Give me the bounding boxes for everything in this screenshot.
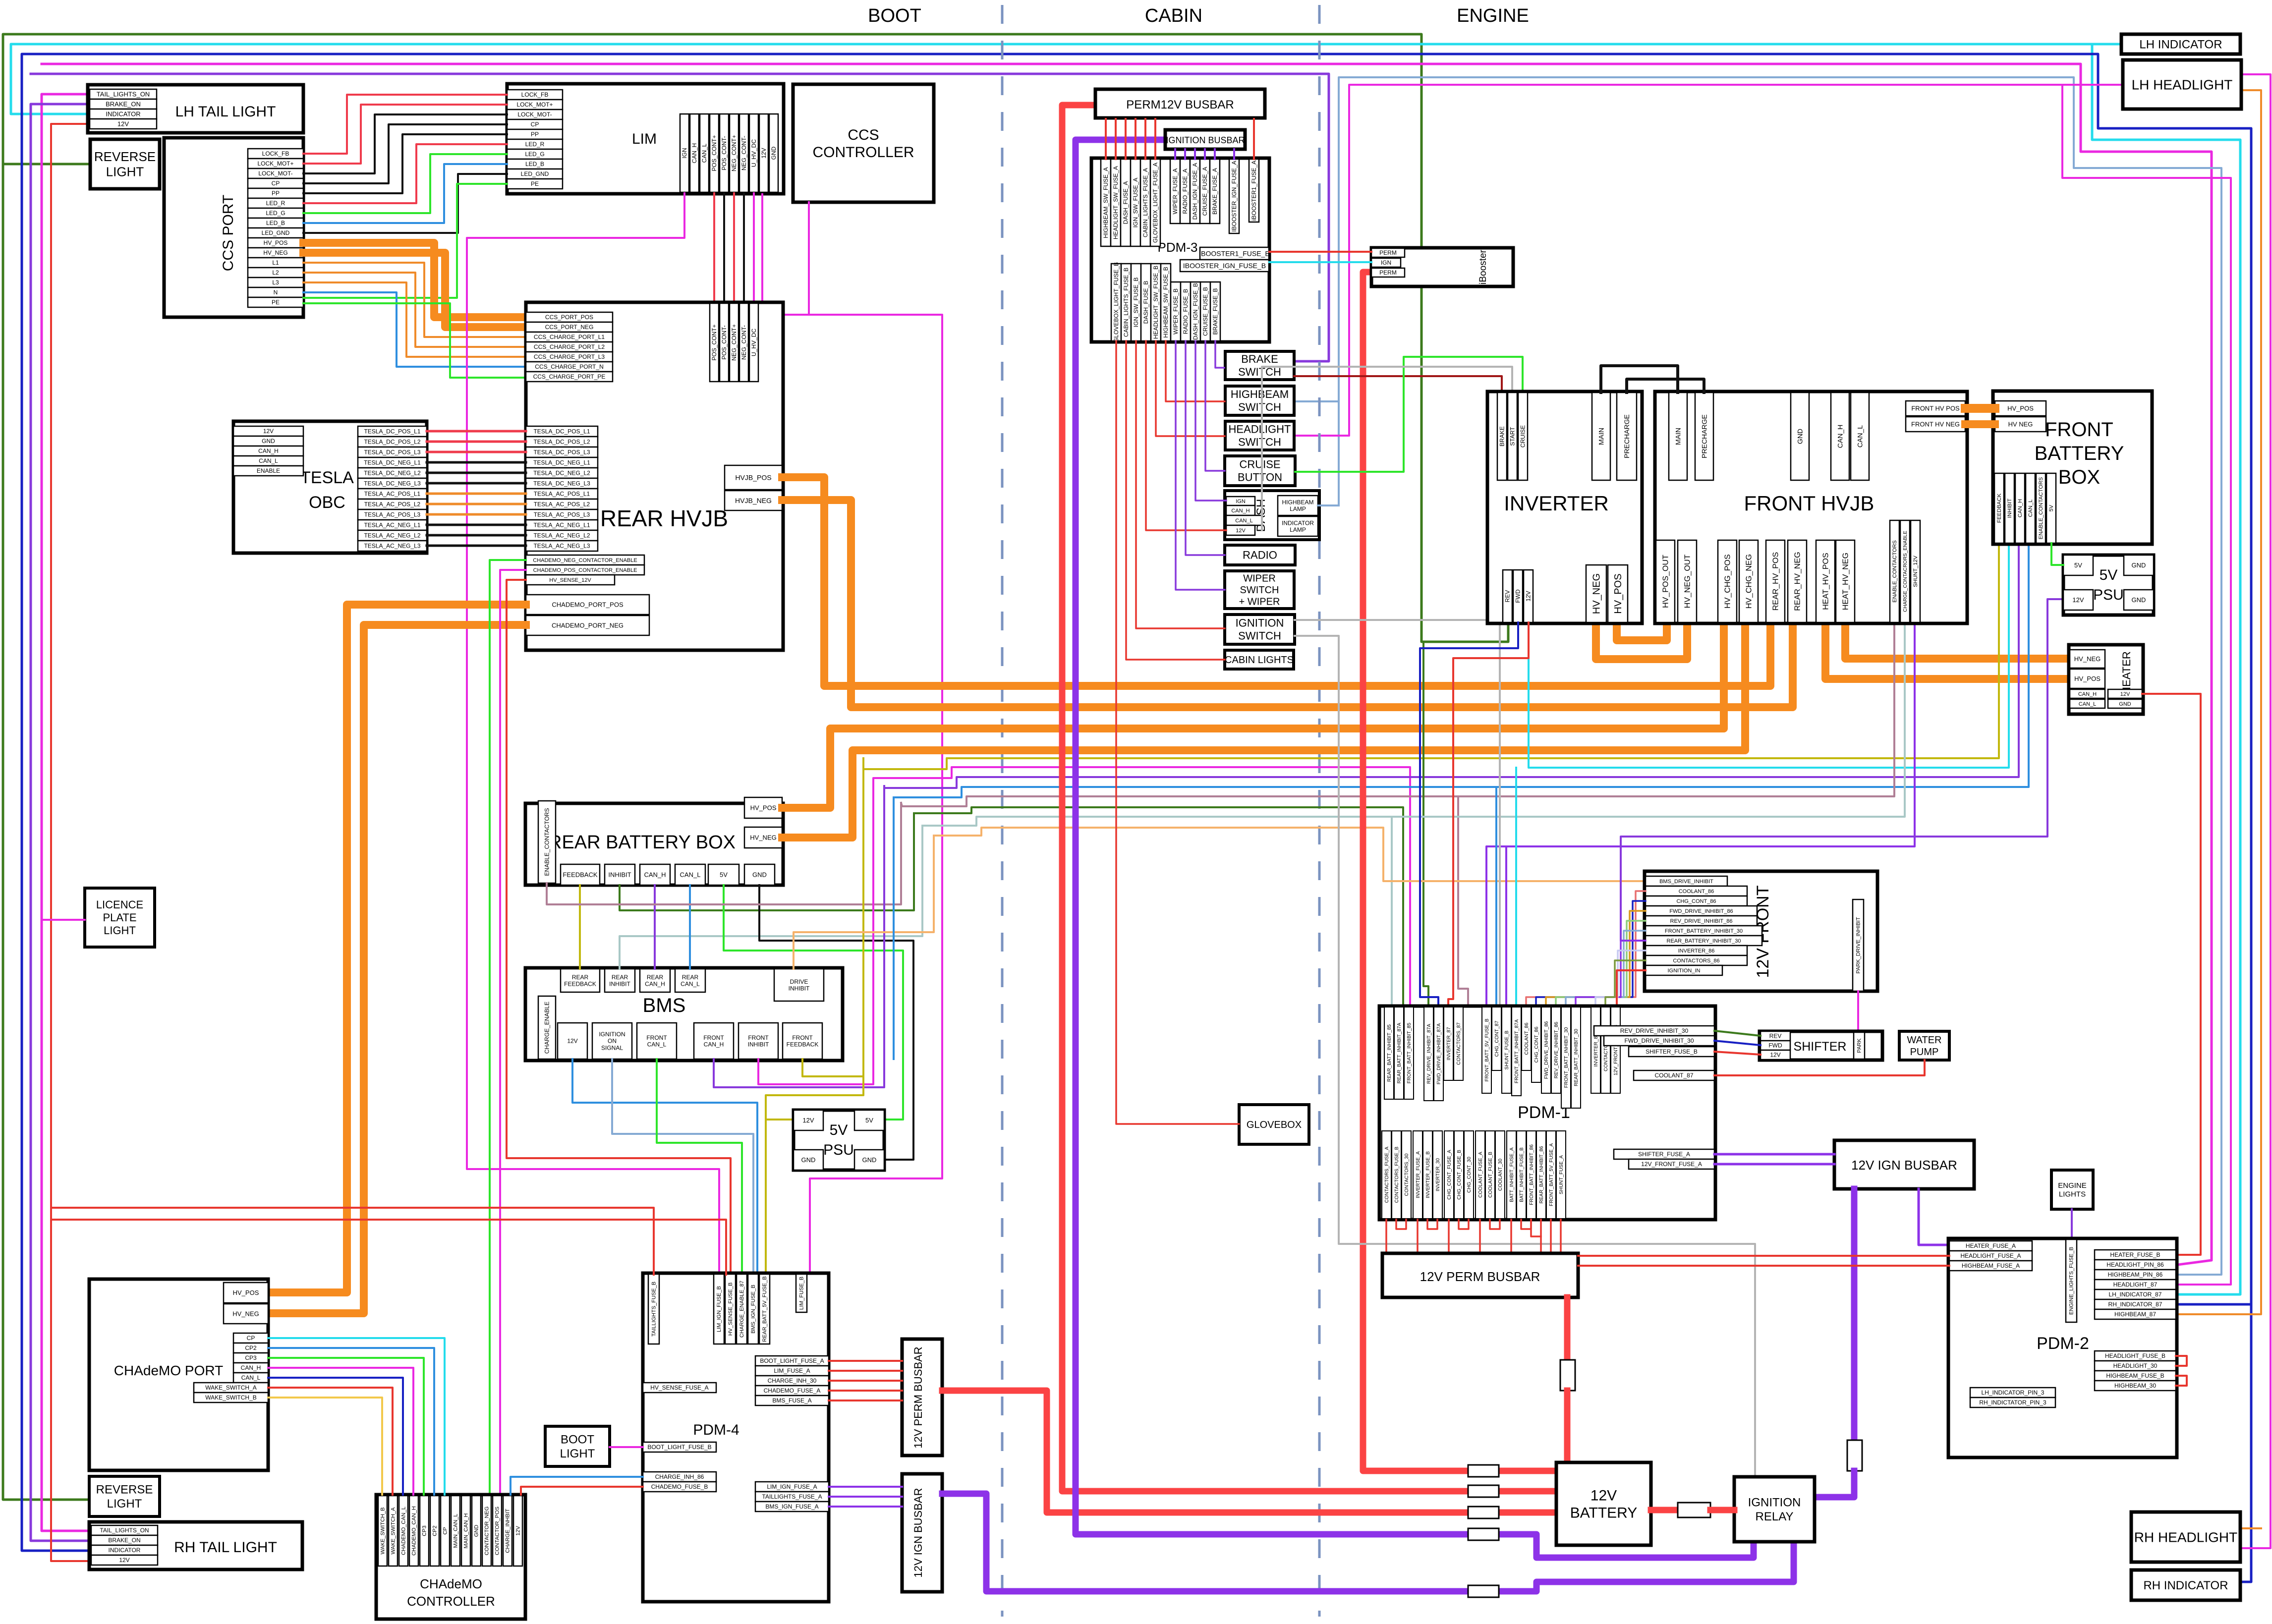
svg-text:CP2: CP2 [245,1344,257,1351]
svg-text:INVERTER_86: INVERTER_86 [1678,948,1715,954]
svg-text:RELAY: RELAY [1756,1510,1794,1523]
svg-text:HEADLIGHT: HEADLIGHT [1229,423,1291,436]
svg-text:CAN_H: CAN_H [644,871,666,879]
svg-text:TESLA_DC_POS_L3: TESLA_DC_POS_L3 [364,449,420,456]
svg-text:BOX: BOX [2058,466,2100,488]
svg-text:IGNITION: IGNITION [1236,617,1284,629]
svg-text:TESLA_AC_NEG_L1: TESLA_AC_NEG_L1 [533,522,590,529]
svg-text:FEEDBACK: FEEDBACK [787,1041,819,1048]
svg-text:GND: GND [752,871,767,879]
svg-text:INVERTER_FUSE_B: INVERTER_FUSE_B [1425,1151,1431,1198]
svg-text:12V: 12V [2072,596,2084,604]
svg-text:TESLA_AC_NEG_L2: TESLA_AC_NEG_L2 [364,532,420,539]
svg-text:BOOT_LIGHT_FUSE_A: BOOT_LIGHT_FUSE_A [760,1357,824,1364]
svg-text:CAN_L: CAN_L [2079,701,2096,707]
svg-text:CHG_CONT_FUSE_A: CHG_CONT_FUSE_A [1447,1150,1452,1200]
svg-text:BATTERY: BATTERY [1570,1505,1638,1521]
svg-text:TESLA_AC_POS_L3: TESLA_AC_POS_L3 [534,511,590,518]
svg-text:LOCK_MOT-: LOCK_MOT- [258,170,292,177]
svg-text:INDICATOR: INDICATOR [1282,519,1314,526]
svg-text:PERM: PERM [1379,249,1397,256]
svg-text:LIGHT: LIGHT [106,164,144,179]
svg-text:SWITCH: SWITCH [1240,585,1279,596]
svg-text:BMS_FUSE_A: BMS_FUSE_A [772,1397,811,1404]
svg-text:BMS: BMS [643,995,686,1016]
svg-text:DASH_IGN_FUSE_A: DASH_IGN_FUSE_A [1192,163,1198,220]
svg-text:BRAKE_ON: BRAKE_ON [108,1537,140,1544]
svg-text:HIGHBEAM_SW_FUSE_B: HIGHBEAM_SW_FUSE_B [1162,267,1169,337]
svg-text:FRONT: FRONT [748,1034,769,1041]
svg-text:GND: GND [2132,561,2146,569]
svg-text:CHG_CONT_86: CHG_CONT_86 [1534,1026,1539,1063]
svg-text:LED_GND: LED_GND [262,229,290,236]
svg-text:12V PERM BUSBAR: 12V PERM BUSBAR [912,1346,924,1448]
svg-text:PE: PE [272,299,280,306]
svg-text:HV_POS: HV_POS [750,804,777,812]
svg-text:GND: GND [2119,701,2131,707]
svg-text:BOOT: BOOT [561,1433,594,1447]
svg-text:CCS_CHARGE_PORT_L2: CCS_CHARGE_PORT_L2 [534,343,605,350]
svg-text:LED_B: LED_B [266,220,285,226]
svg-text:HIGHBEAM: HIGHBEAM [1231,388,1289,400]
svg-text:CAN_L: CAN_L [2028,500,2034,517]
svg-text:5V: 5V [865,1117,873,1124]
svg-text:CHARGE_INH_30: CHARGE_INH_30 [768,1377,817,1384]
svg-text:CHADEMO_NEG_CONTACTOR_ENABLE: CHADEMO_NEG_CONTACTOR_ENABLE [533,558,637,563]
svg-text:LIM_FUSE_B: LIM_FUSE_B [799,1277,805,1310]
svg-text:CONTACTORS_FUSE_A: CONTACTORS_FUSE_A [1384,1146,1390,1203]
svg-text:HV_NEG: HV_NEG [2074,655,2101,663]
svg-text:HEADLIGHT_87: HEADLIGHT_87 [2113,1281,2158,1288]
svg-text:LED_G: LED_G [525,151,544,158]
svg-text:TESLA_DC_NEG_L2: TESLA_DC_NEG_L2 [364,470,421,477]
svg-text:HV_POS_OUT: HV_POS_OUT [1661,555,1670,608]
svg-text:FRONT_BATT_INHIBIT_30: FRONT_BATT_INHIBIT_30 [1564,1027,1569,1088]
svg-text:CCS_CHARGE_PORT_L1: CCS_CHARGE_PORT_L1 [534,334,605,340]
svg-text:COOLANT_86: COOLANT_86 [1679,889,1714,895]
svg-text:PERM: PERM [1379,269,1397,276]
svg-text:TAIL_LIGHTS_ON: TAIL_LIGHTS_ON [100,1527,149,1534]
svg-text:WIPER_FUSE_B: WIPER_FUSE_B [1172,288,1179,335]
svg-text:PSU: PSU [823,1142,854,1158]
svg-text:HVJB_POS: HVJB_POS [735,473,771,481]
svg-text:REVERSE: REVERSE [94,149,156,164]
svg-text:CHAdeMO: CHAdeMO [420,1576,482,1591]
svg-text:SWITCH: SWITCH [1238,436,1281,448]
svg-text:U_HV_DC: U_HV_DC [750,139,757,167]
svg-text:INDICATOR: INDICATOR [109,1547,141,1554]
svg-text:TESLA_AC_NEG_L3: TESLA_AC_NEG_L3 [364,543,420,550]
svg-text:IBOOSTER1_FUSE_B: IBOOSTER1_FUSE_B [1199,249,1269,257]
svg-text:TAILLIGHTS_FUSE_B: TAILLIGHTS_FUSE_B [651,1282,657,1337]
svg-text:INVERTER: INVERTER [1504,492,1609,515]
svg-text:N: N [274,289,278,296]
svg-text:CAN_L: CAN_L [701,143,708,163]
svg-text:PRECHARGE: PRECHARGE [1700,414,1708,458]
svg-text:BATTERY: BATTERY [2035,443,2124,464]
svg-text:5V: 5V [720,871,728,879]
svg-text:CP: CP [531,121,539,128]
svg-text:SWITCH: SWITCH [1238,401,1281,413]
svg-text:HEADLIGHT_SW_FUSE_A: HEADLIGHT_SW_FUSE_A [1112,166,1119,239]
svg-text:GND: GND [862,1156,877,1164]
svg-text:LIGHT: LIGHT [104,924,136,937]
svg-text:12V: 12V [1236,528,1246,534]
svg-text:PDM-2: PDM-2 [2037,1334,2089,1353]
svg-text:CAN_L: CAN_L [680,871,701,879]
svg-text:LOCK_MOT-: LOCK_MOT- [517,111,552,118]
svg-text:WAKE_SWITCH_B: WAKE_SWITCH_B [380,1508,386,1555]
svg-text:IGN_SW_FUSE_B: IGN_SW_FUSE_B [1133,278,1139,328]
svg-text:CONTACTOR_POS: CONTACTOR_POS [495,1507,501,1555]
svg-text:12V: 12V [760,148,767,158]
svg-text:CRUISE: CRUISE [1239,458,1280,471]
svg-text:IGN: IGN [681,148,688,158]
svg-text:LAMP: LAMP [1290,526,1306,533]
svg-text:LIGHT: LIGHT [560,1447,595,1460]
svg-text:WIPER_FUSE_A: WIPER_FUSE_A [1172,168,1179,215]
svg-text:CAN_H: CAN_H [1231,508,1250,514]
svg-text:CRUISE_FUSE_A: CRUISE_FUSE_A [1201,167,1208,216]
svg-text:CCS_CHARGE_PORT_L3: CCS_CHARGE_PORT_L3 [534,353,605,360]
svg-text:CHG_CONT_FUSE_B: CHG_CONT_FUSE_B [1457,1150,1462,1200]
svg-text:PSU: PSU [2093,587,2124,603]
svg-text:REAR_HV_POS: REAR_HV_POS [1771,552,1780,611]
svg-text:CHARGE_INH_86: CHARGE_INH_86 [655,1473,704,1480]
svg-text:IGN: IGN [1381,259,1391,266]
svg-text:REAR: REAR [647,974,664,981]
svg-text:REV: REV [1769,1033,1782,1040]
svg-text:START: START [1509,427,1516,446]
svg-text:INVERTER_87: INVERTER_87 [1446,1027,1452,1061]
svg-text:RH HEADLIGHT: RH HEADLIGHT [2134,1529,2237,1545]
svg-text:WAKE_SWITCH_A: WAKE_SWITCH_A [391,1507,397,1555]
svg-text:FRONT: FRONT [703,1034,724,1041]
svg-text:TESLA_DC_POS_L3: TESLA_DC_POS_L3 [533,449,590,456]
svg-text:INVERTER_FUSE_A: INVERTER_FUSE_A [1416,1151,1421,1198]
svg-text:CHADEMO_CAN_H: CHADEMO_CAN_H [411,1506,417,1556]
svg-text:IGN: IGN [1236,499,1246,504]
svg-text:CAN_H: CAN_H [1836,425,1844,448]
svg-text:HEADLIGHT_30: HEADLIGHT_30 [2113,1362,2158,1369]
svg-text:BRAKE_FUSE_B: BRAKE_FUSE_B [1212,288,1219,335]
svg-text:FEEDBACK: FEEDBACK [564,981,596,988]
svg-text:CABIN_LIGHTS_FUSE_B: CABIN_LIGHTS_FUSE_B [1123,268,1130,337]
svg-text:NEG_CONT+: NEG_CONT+ [731,324,738,361]
svg-text:HV_NEG: HV_NEG [750,834,776,841]
svg-text:CHARGE_INHBIT: CHARGE_INHBIT [505,1509,511,1553]
svg-text:CHADEMO_PORT_NEG: CHADEMO_PORT_NEG [552,622,624,629]
svg-text:TESLA_AC_POS_L1: TESLA_AC_POS_L1 [534,491,590,498]
svg-text:BMS_IGN_FUSE_A: BMS_IGN_FUSE_A [765,1503,818,1510]
svg-text:CAN_H: CAN_H [241,1364,261,1371]
svg-text:COOLANT_FUSE_A: COOLANT_FUSE_A [1478,1152,1483,1198]
svg-text:CONTACTORS_86: CONTACTORS_86 [1673,958,1719,964]
svg-text:TESLA_DC_POS_L2: TESLA_DC_POS_L2 [364,439,420,446]
svg-text:HV NEG: HV NEG [2008,421,2033,428]
svg-text:ENABLE_CONTACTORS: ENABLE_CONTACTORS [2038,477,2044,540]
svg-text:FWD_DRIVE_INHIBIT_87A: FWD_DRIVE_INHIBIT_87A [1436,1023,1442,1084]
svg-text:IGNITION BUSBAR: IGNITION BUSBAR [1166,135,1245,145]
svg-text:CHARGE_ENABLE: CHARGE_ENABLE [544,1002,551,1054]
svg-text:FEEDBACK: FEEDBACK [1996,493,2002,523]
svg-text:PARK: PARK [1857,1038,1863,1053]
svg-text:CAN_L: CAN_L [241,1374,261,1381]
svg-text:ENGINE: ENGINE [1457,5,1529,26]
svg-text:MAIN_CAN_H: MAIN_CAN_H [463,1513,469,1548]
svg-text:CAN_H: CAN_H [691,143,698,164]
svg-text:REAR_BATT_INHIBIT_87A: REAR_BATT_INHIBIT_87A [1397,1022,1402,1083]
svg-text:REAR BATTERY BOX: REAR BATTERY BOX [548,832,736,853]
svg-text:FWD: FWD [1515,589,1522,603]
svg-text:HV_CHG_NEG: HV_CHG_NEG [1745,554,1753,609]
svg-text:CAN_L: CAN_L [1856,425,1864,448]
svg-text:FRONT_BATTERY_INHIBIT_30: FRONT_BATTERY_INHIBIT_30 [1665,928,1743,934]
svg-text:TESLA_DC_POS_L2: TESLA_DC_POS_L2 [533,439,590,446]
svg-text:CABIN: CABIN [1145,5,1202,26]
svg-text:GND: GND [770,146,777,160]
svg-text:LH TAIL LIGHT: LH TAIL LIGHT [175,104,276,120]
svg-text:PUMP: PUMP [1910,1047,1939,1058]
svg-text:INHIBIT: INHIBIT [789,985,810,992]
svg-text:BMS_DRIVE_INHIBIT: BMS_DRIVE_INHIBIT [1659,879,1713,885]
svg-text:TESLA: TESLA [300,468,354,487]
svg-text:CCS PORT: CCS PORT [220,195,236,271]
svg-text:HV_NEG: HV_NEG [1591,573,1602,614]
svg-text:12V: 12V [1590,1487,1617,1504]
svg-text:INHIBIT: INHIBIT [608,871,631,879]
svg-text:TAIL_LIGHTS_ON: TAIL_LIGHTS_ON [97,91,150,98]
svg-text:FRONT_BATT_5V_FUSE_A: FRONT_BATT_5V_FUSE_A [1549,1143,1554,1206]
svg-text:CCS_CHARGE_PORT_N: CCS_CHARGE_PORT_N [535,363,603,370]
svg-text:PERM12V BUSBAR: PERM12V BUSBAR [1126,98,1234,112]
svg-text:CONTACTORS_30: CONTACTORS_30 [1404,1153,1410,1196]
svg-text:CHG_CONT_30: CHG_CONT_30 [1467,1157,1472,1193]
svg-text:HEADLIGHT_FUSE_A: HEADLIGHT_FUSE_A [1960,1252,2021,1259]
svg-text:ENGINE_LIGHTS_FUSE_B: ENGINE_LIGHTS_FUSE_B [2069,1247,2075,1315]
svg-text:TESLA_DC_NEG_L3: TESLA_DC_NEG_L3 [364,480,421,487]
svg-text:CP: CP [247,1335,255,1342]
svg-text:5V: 5V [2100,567,2118,583]
svg-text:CONTACTOR_NEG: CONTACTOR_NEG [484,1507,490,1556]
svg-text:FRONT_BATT_INHIBIT_85: FRONT_BATT_INHIBIT_85 [1407,1022,1412,1083]
svg-text:HEAT_HV_NEG: HEAT_HV_NEG [1841,553,1850,610]
svg-text:BATT_INHIBIT_FUSE_A: BATT_INHIBIT_FUSE_A [1509,1147,1515,1202]
svg-text:CHG_CONT_86: CHG_CONT_86 [1676,898,1716,904]
svg-text:GND: GND [1796,429,1804,444]
svg-text:+ WIPER: + WIPER [1239,597,1280,608]
svg-text:HV_SENSE_FUSE_A: HV_SENSE_FUSE_A [650,1384,708,1391]
svg-text:REV_DRIVE_INHIBIT_30: REV_DRIVE_INHIBIT_30 [1620,1027,1689,1034]
svg-text:HEADLIGHT_PIN_86: HEADLIGHT_PIN_86 [2106,1261,2164,1268]
svg-text:TESLA_DC_NEG_L1: TESLA_DC_NEG_L1 [364,459,421,466]
svg-text:CHADEMO_POS_CONTACTOR_ENABLE: CHADEMO_POS_CONTACTOR_ENABLE [533,567,637,573]
svg-text:CP3: CP3 [245,1354,257,1361]
svg-text:12V: 12V [802,1117,814,1124]
svg-text:CP: CP [443,1527,449,1534]
svg-text:12V IGN BUSBAR: 12V IGN BUSBAR [912,1488,924,1578]
svg-text:HIGHBEAM: HIGHBEAM [1282,499,1313,505]
svg-text:INHIBIT: INHIBIT [2007,499,2013,518]
svg-text:LH INDICATOR: LH INDICATOR [2139,38,2222,51]
svg-text:12V IGN BUSBAR: 12V IGN BUSBAR [1851,1158,1957,1173]
svg-text:IBOOSTER_IGN_FUSE_B: IBOOSTER_IGN_FUSE_B [1183,262,1266,270]
svg-text:HIGHBEAM_PIN_86: HIGHBEAM_PIN_86 [2108,1271,2163,1278]
svg-text:ENGINE: ENGINE [2058,1181,2087,1190]
svg-text:LED_G: LED_G [266,210,285,217]
svg-text:HEADLIGHT_FUSE_B: HEADLIGHT_FUSE_B [2105,1352,2165,1359]
svg-text:LOCK_MOT+: LOCK_MOT+ [516,101,553,108]
svg-text:PRECHARGE: PRECHARGE [1623,414,1631,458]
svg-text:TESLA_DC_POS_L1: TESLA_DC_POS_L1 [364,428,420,435]
svg-text:HIGHBEAM_FUSE_A: HIGHBEAM_FUSE_A [1962,1262,2020,1269]
svg-text:HEAT_HV_POS: HEAT_HV_POS [1821,553,1830,610]
svg-text:ENABLE: ENABLE [257,467,280,474]
svg-text:IGNITION_IN: IGNITION_IN [1667,968,1700,974]
svg-text:12V: 12V [1770,1052,1780,1059]
svg-text:REAR_BATT_INHIBIT_30: REAR_BATT_INHIBIT_30 [1574,1029,1579,1086]
svg-text:COOLANT_30: COOLANT_30 [1498,1159,1503,1191]
svg-text:HV_NEG: HV_NEG [263,249,287,256]
svg-text:SHIFTER: SHIFTER [1794,1040,1847,1054]
svg-text:HEATER_FUSE_A: HEATER_FUSE_A [1966,1242,2016,1249]
svg-text:HIGHBEAM_SW_FUSE_A: HIGHBEAM_SW_FUSE_A [1102,167,1109,238]
svg-text:SHUNT_FUSE_B: SHUNT_FUSE_B [1504,1030,1510,1069]
svg-text:5V: 5V [2048,504,2054,511]
svg-text:12V: 12V [515,1526,521,1536]
svg-text:INVERTER_30: INVERTER_30 [1435,1158,1441,1192]
svg-text:FWD_DRIVE_INHIBIT_86: FWD_DRIVE_INHIBIT_86 [1544,1021,1549,1079]
svg-text:CAN_H: CAN_H [2017,499,2023,517]
svg-text:IGNITION: IGNITION [599,1031,625,1038]
svg-text:HV_POS: HV_POS [2074,675,2101,682]
svg-text:LED_B: LED_B [525,161,544,168]
svg-text:CONTACTORS_87: CONTACTORS_87 [1456,1022,1462,1065]
svg-text:BUTTON: BUTTON [1238,471,1282,484]
svg-text:CAN_H: CAN_H [258,448,279,454]
svg-text:BATT_INHIBIT_FUSE_B: BATT_INHIBIT_FUSE_B [1519,1147,1525,1202]
svg-text:GND: GND [2132,596,2146,604]
svg-text:NEG_CONT-: NEG_CONT- [740,325,747,360]
svg-text:CHARGE_ENABLE_87: CHARGE_ENABLE_87 [739,1281,745,1338]
svg-text:HV_POS: HV_POS [233,1289,259,1296]
svg-text:CHADEMO_PORT_POS: CHADEMO_PORT_POS [552,601,624,609]
svg-text:FRONT_BATT_INHIBIT_87A: FRONT_BATT_INHIBIT_87A [1514,1019,1520,1084]
svg-text:RADIO_FUSE_A: RADIO_FUSE_A [1182,168,1189,214]
svg-text:FWD_DRIVE_INHIBIT_86: FWD_DRIVE_INHIBIT_86 [1669,908,1733,914]
svg-text:SHUNT_12V: SHUNT_12V [1913,556,1919,587]
svg-text:12V: 12V [567,1038,577,1045]
svg-text:TESLA_AC_POS_L3: TESLA_AC_POS_L3 [364,511,421,518]
svg-text:CAN_L: CAN_L [647,1041,667,1048]
svg-text:LOCK_FB: LOCK_FB [521,91,549,98]
svg-text:TESLA_DC_NEG_L1: TESLA_DC_NEG_L1 [533,459,590,466]
svg-text:CP2: CP2 [432,1525,438,1536]
svg-text:REAR_BATT_5V_FUSE_B: REAR_BATT_5V_FUSE_B [762,1276,768,1342]
svg-text:FWD_DRIVE_INHIBIT_30: FWD_DRIVE_INHIBIT_30 [1624,1037,1694,1044]
svg-text:HV_POS: HV_POS [2007,405,2034,412]
svg-text:WAKE_SWITCH_A: WAKE_SWITCH_A [205,1384,257,1391]
svg-text:CAN_L: CAN_L [259,457,278,464]
svg-text:PLATE: PLATE [103,911,136,924]
svg-text:MAIN_CAN_L: MAIN_CAN_L [453,1513,459,1548]
svg-text:LIM_IGN_FUSE_A: LIM_IGN_FUSE_A [767,1483,817,1490]
svg-text:5V: 5V [830,1122,848,1138]
svg-text:RADIO: RADIO [1243,549,1277,561]
svg-text:REAR_BATT_INHIBIT_85: REAR_BATT_INHIBIT_85 [1387,1024,1392,1082]
svg-text:12V: 12V [117,120,129,128]
svg-text:REAR: REAR [572,974,589,981]
svg-text:FRONT: FRONT [646,1034,667,1041]
svg-text:POS_CONT-: POS_CONT- [721,136,728,170]
svg-text:CAN_H: CAN_H [2078,691,2097,697]
svg-text:TESLA_AC_POS_L2: TESLA_AC_POS_L2 [534,501,590,508]
svg-text:HV_POS: HV_POS [1613,573,1624,614]
svg-text:BRAKE_FUSE_A: BRAKE_FUSE_A [1211,168,1218,215]
svg-text:GND: GND [262,438,275,445]
svg-text:INHIBIT: INHIBIT [609,981,630,988]
svg-text:HIGHBEAM_FUSE_B: HIGHBEAM_FUSE_B [2106,1372,2164,1379]
svg-text:SWITCH: SWITCH [1238,630,1281,642]
svg-text:HIGHBEAM_30: HIGHBEAM_30 [2114,1382,2156,1389]
svg-text:L2: L2 [272,269,279,276]
svg-text:GLOVEBOX_LIGHT_FUSE_B: GLOVEBOX_LIGHT_FUSE_B [1113,262,1120,342]
svg-text:CHADEMO_FUSE_B: CHADEMO_FUSE_B [651,1483,708,1490]
svg-text:REAR_HV_NEG: REAR_HV_NEG [1793,552,1802,611]
svg-text:TESLA_DC_NEG_L3: TESLA_DC_NEG_L3 [533,480,590,487]
svg-text:RH_INDICATOR_87: RH_INDICATOR_87 [2108,1301,2162,1308]
svg-text:DASH_FUSE_A: DASH_FUSE_A [1122,181,1129,224]
svg-text:HIGHBEAM_87: HIGHBEAM_87 [2114,1311,2156,1318]
svg-text:TESLA_AC_NEG_L1: TESLA_AC_NEG_L1 [364,522,420,529]
svg-text:CHADEMO_CAN_L: CHADEMO_CAN_L [401,1507,407,1555]
svg-text:CCS_PORT_NEG: CCS_PORT_NEG [545,324,594,331]
svg-text:TESLA_DC_NEG_L2: TESLA_DC_NEG_L2 [533,470,590,477]
svg-text:FRONT: FRONT [792,1034,813,1041]
svg-text:LIGHT: LIGHT [107,1497,142,1511]
svg-text:GND: GND [801,1156,816,1164]
svg-text:REV_DRIVE_INHIBIT_86: REV_DRIVE_INHIBIT_86 [1670,918,1733,924]
svg-text:PP: PP [531,131,539,138]
svg-text:GND: GND [474,1525,480,1537]
svg-text:U_HV_DC: U_HV_DC [750,329,757,356]
svg-text:COOLANT_87: COOLANT_87 [1654,1072,1693,1079]
svg-text:PDM-3: PDM-3 [1158,240,1198,255]
svg-text:HV_POS: HV_POS [264,239,288,246]
svg-text:BRAKE: BRAKE [1241,353,1278,365]
svg-text:LED_R: LED_R [525,141,545,148]
svg-text:TAILLIGHTS_FUSE_A: TAILLIGHTS_FUSE_A [762,1493,822,1500]
svg-text:PP: PP [272,190,280,197]
svg-text:LIM_FUSE_A: LIM_FUSE_A [774,1367,810,1374]
svg-text:CAN_L: CAN_L [1235,518,1252,524]
svg-text:CCS: CCS [848,127,879,143]
svg-text:iBOOSTER1_FUSE_A: iBOOSTER1_FUSE_A [1250,161,1257,221]
svg-text:POS_CONT-: POS_CONT- [721,325,728,359]
svg-text:CABIN LIGHTS: CABIN LIGHTS [1225,655,1294,666]
svg-text:LH_INDICATOR_PIN_3: LH_INDICATOR_PIN_3 [1982,1389,2045,1396]
svg-text:WAKE_SWITCH_B: WAKE_SWITCH_B [205,1394,257,1401]
svg-text:ENABLE_CONTACTORS: ENABLE_CONTACTORS [1892,540,1898,603]
svg-text:PARK_DRIVE_INHIBIT: PARK_DRIVE_INHIBIT [1856,917,1862,973]
svg-text:12V PERM BUSBAR: 12V PERM BUSBAR [1420,1269,1540,1284]
svg-text:HV_NEG: HV_NEG [232,1310,259,1318]
svg-text:SHIFTER_FUSE_A: SHIFTER_FUSE_A [1638,1151,1690,1158]
svg-text:FEEDBACK: FEEDBACK [563,871,597,879]
svg-text:FRONT: FRONT [2045,419,2113,441]
svg-text:CONTROLLER: CONTROLLER [812,144,914,161]
svg-text:CABIN_LIGHTS_FUSE_A: CABIN_LIGHTS_FUSE_A [1142,168,1149,237]
